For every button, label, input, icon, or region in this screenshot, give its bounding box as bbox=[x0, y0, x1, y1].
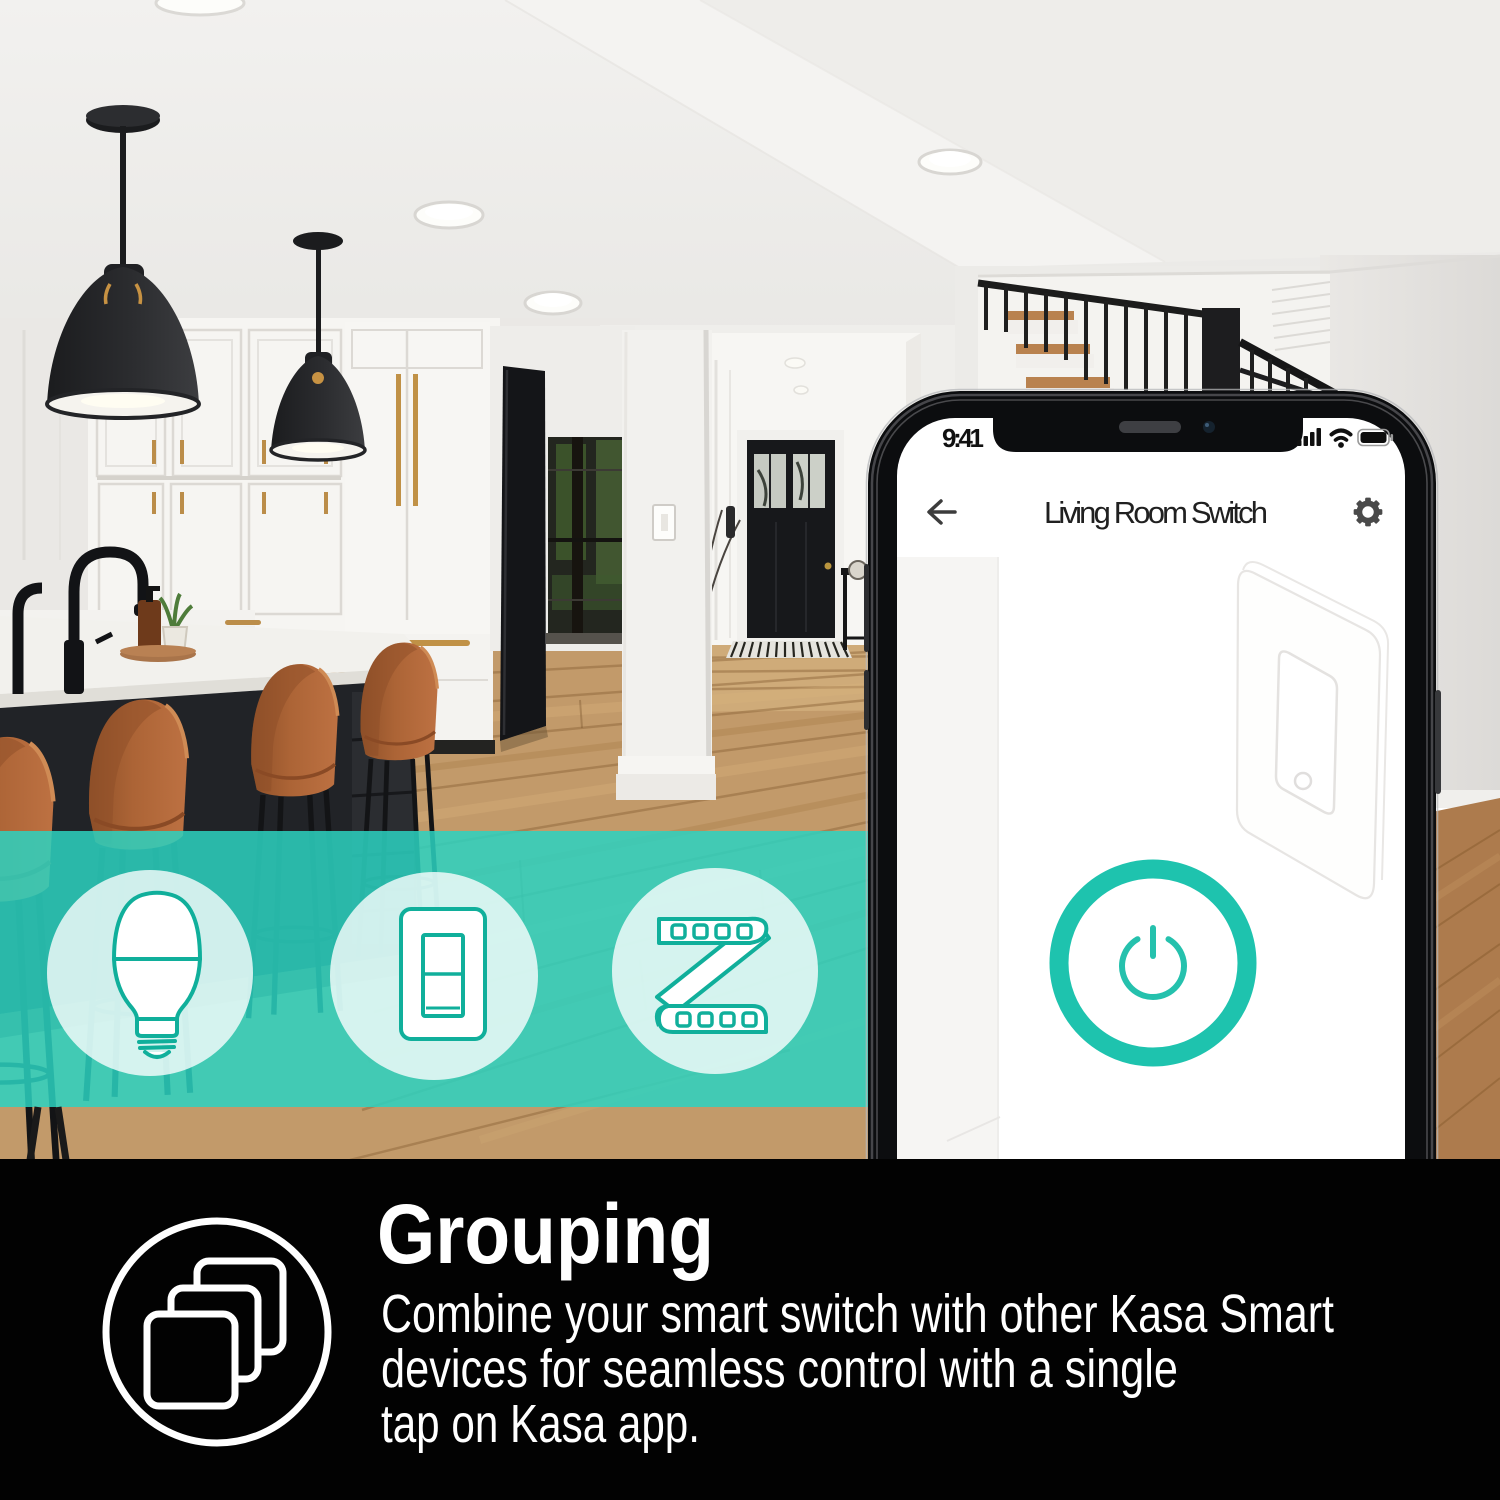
svg-text:9:41: 9:41 bbox=[942, 423, 984, 453]
svg-text:devices for seamless control w: devices for seamless control with a sing… bbox=[381, 1339, 1178, 1399]
svg-text:Grouping: Grouping bbox=[377, 1187, 714, 1281]
svg-text:Living Room Switch: Living Room Switch bbox=[1044, 495, 1268, 530]
svg-text:Combine your smart switch with: Combine your smart switch with other Kas… bbox=[381, 1284, 1334, 1344]
svg-text:tap on Kasa app.: tap on Kasa app. bbox=[381, 1394, 700, 1454]
